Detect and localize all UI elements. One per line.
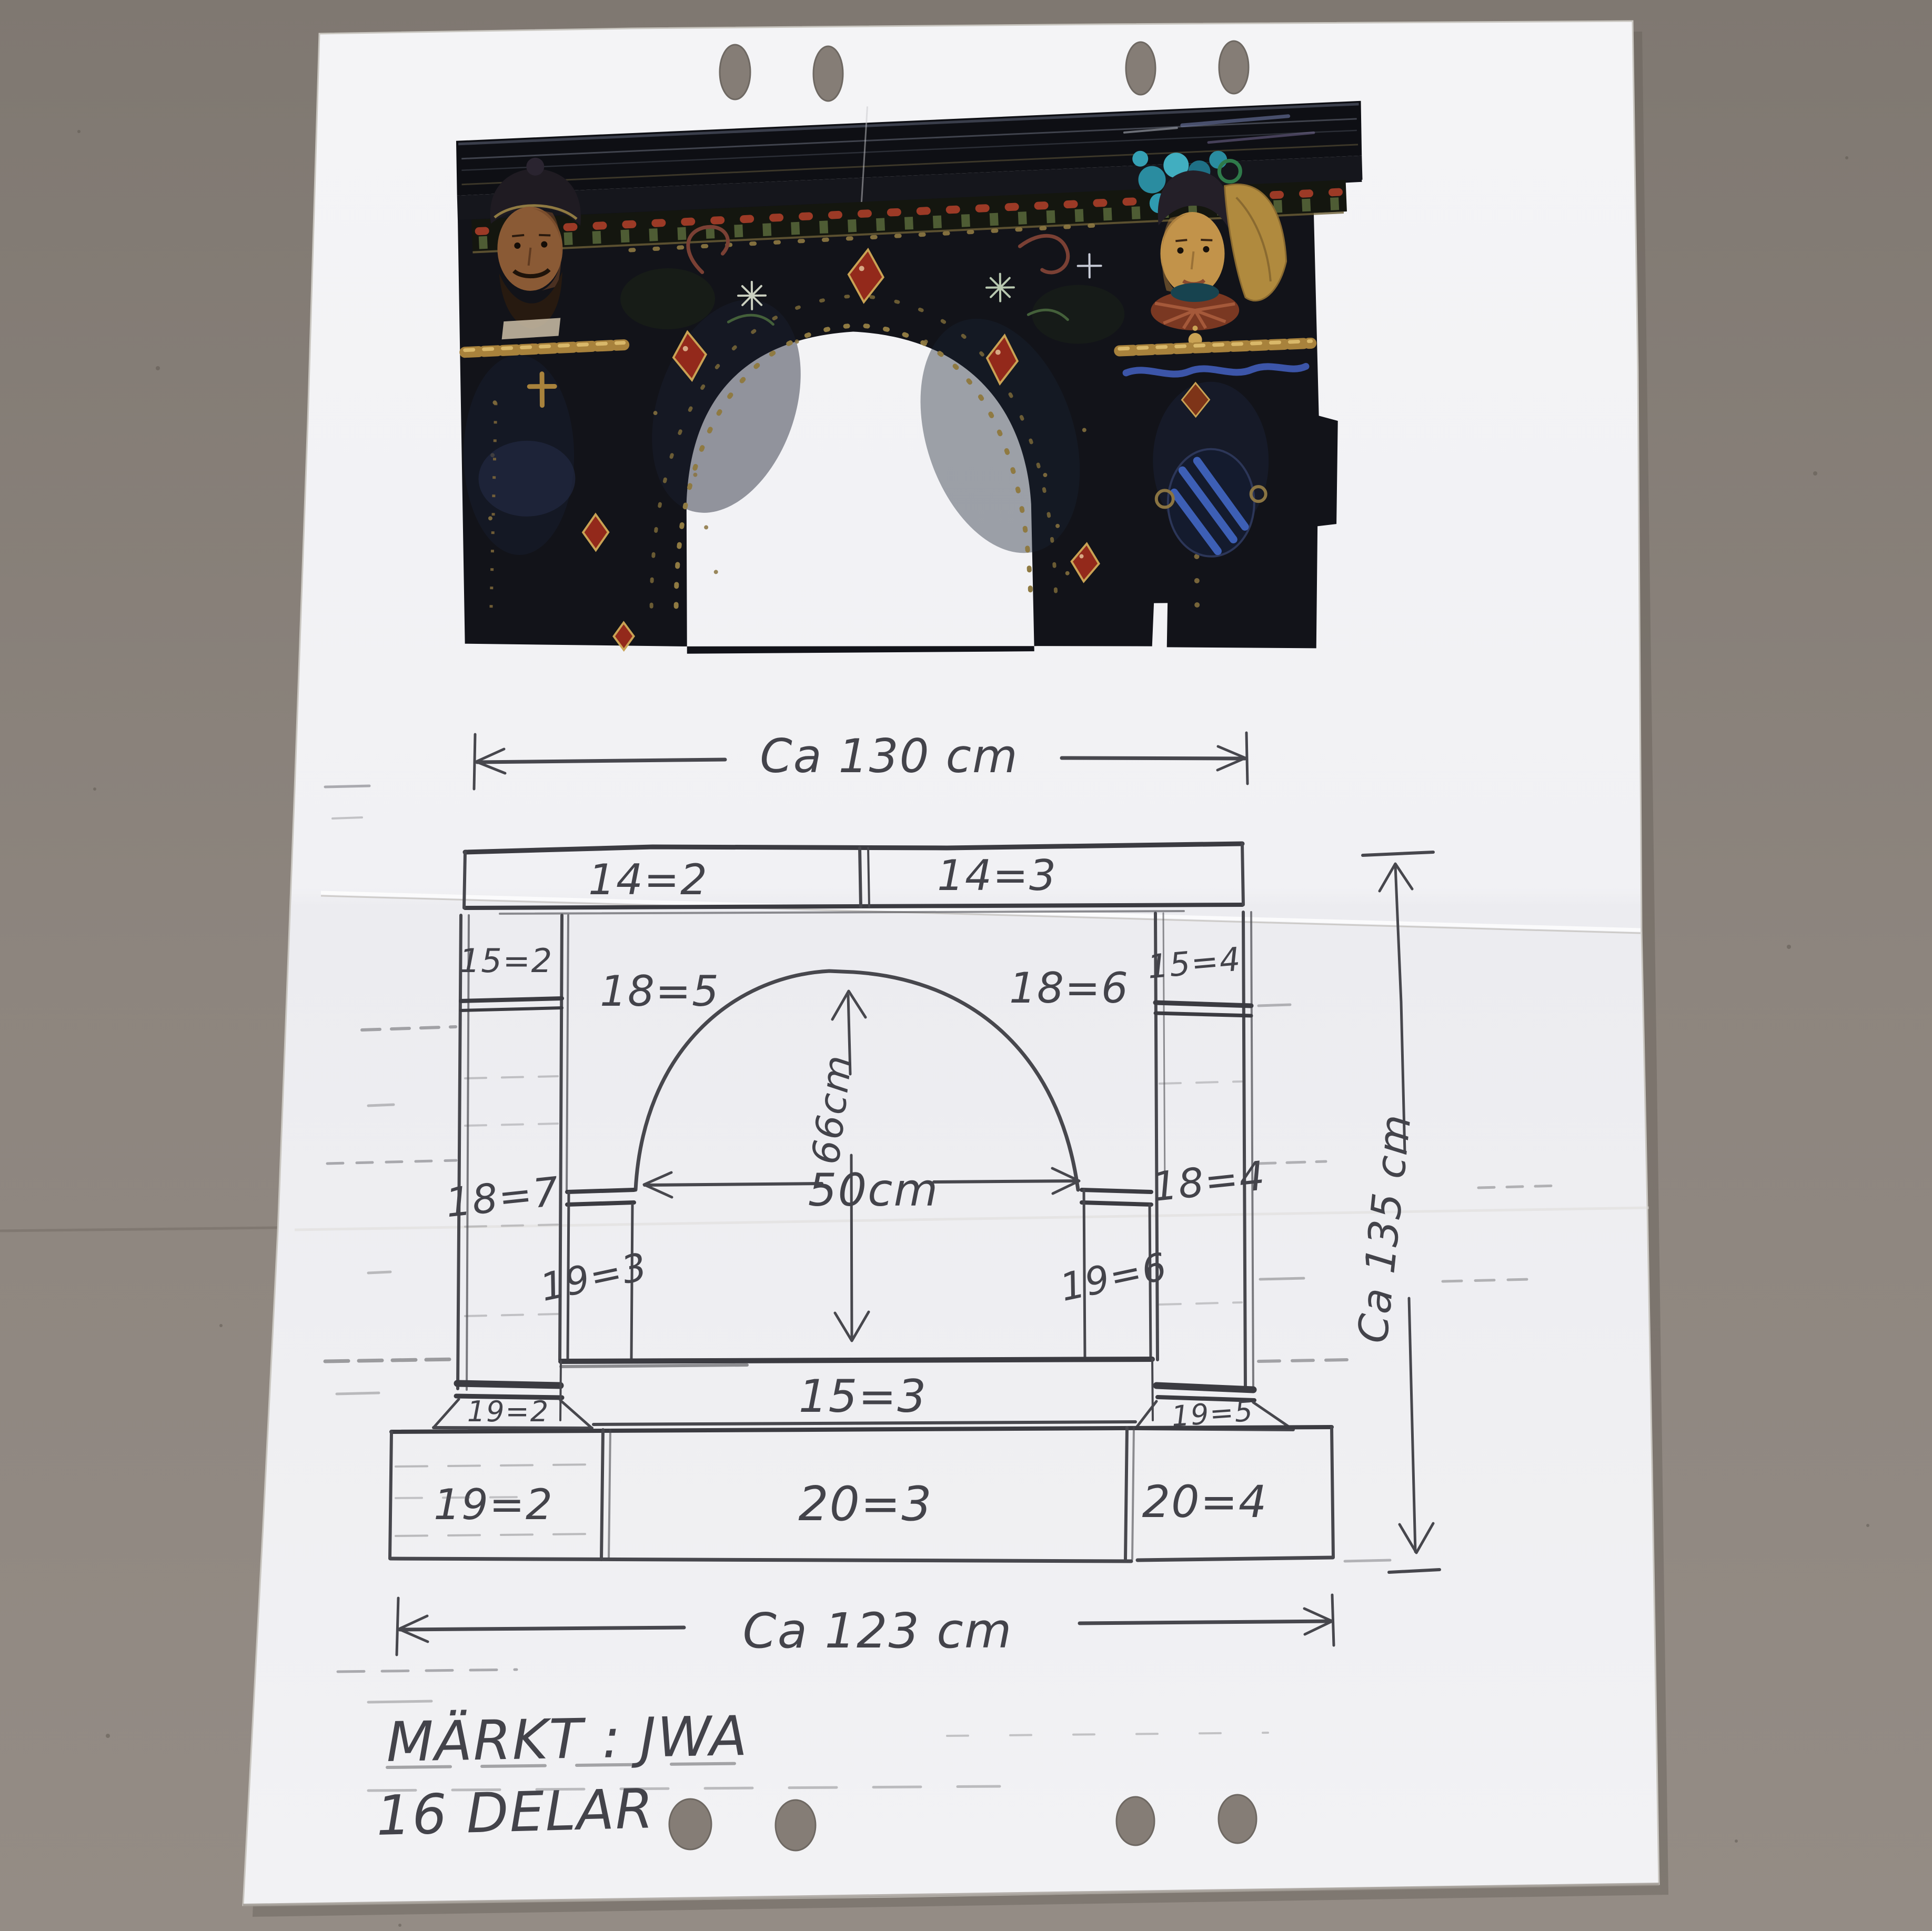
- lintel-label: 15=3: [799, 1370, 927, 1423]
- cornice-left-label: 14=2: [588, 855, 708, 904]
- star-flower: [738, 282, 766, 309]
- cap-right-label: 15=4: [1146, 939, 1243, 986]
- punch-hole: [1116, 1797, 1154, 1845]
- spandrel-left-label: 18=5: [600, 967, 720, 1016]
- punch-hole: [669, 1799, 711, 1849]
- dim-top-label: Ca 130 cm: [760, 729, 1018, 783]
- punch-hole: [720, 45, 750, 99]
- dim-bottom-label: Ca 123 cm: [743, 1603, 1013, 1659]
- punch-hole: [813, 46, 843, 101]
- star-flower: [987, 274, 1014, 301]
- dim-arch-width-label: 50cm: [808, 1164, 939, 1217]
- plinth-left-label: 19=2: [467, 1395, 549, 1428]
- punch-hole: [1219, 1795, 1256, 1843]
- photographed-document: Ca 130 cm 14=2 14=3 15=2 18=7: [0, 0, 1932, 1931]
- cornice-right-label: 14=3: [937, 851, 1057, 900]
- base-left-label: 19=2: [434, 1480, 554, 1529]
- punch-hole: [776, 1800, 816, 1851]
- base-center-label: 20=3: [798, 1477, 932, 1532]
- note-parts: 16 DELAR: [375, 1776, 655, 1848]
- punch-hole: [1219, 41, 1249, 94]
- base-right-label: 20=4: [1142, 1476, 1268, 1528]
- spandrel-right-label: 18=6: [1009, 964, 1129, 1013]
- punch-hole: [1126, 42, 1155, 95]
- note-marked: MÄRKT : JWA: [386, 1704, 749, 1774]
- cap-left-label: 15=2: [459, 942, 553, 980]
- left-collar: [501, 318, 560, 339]
